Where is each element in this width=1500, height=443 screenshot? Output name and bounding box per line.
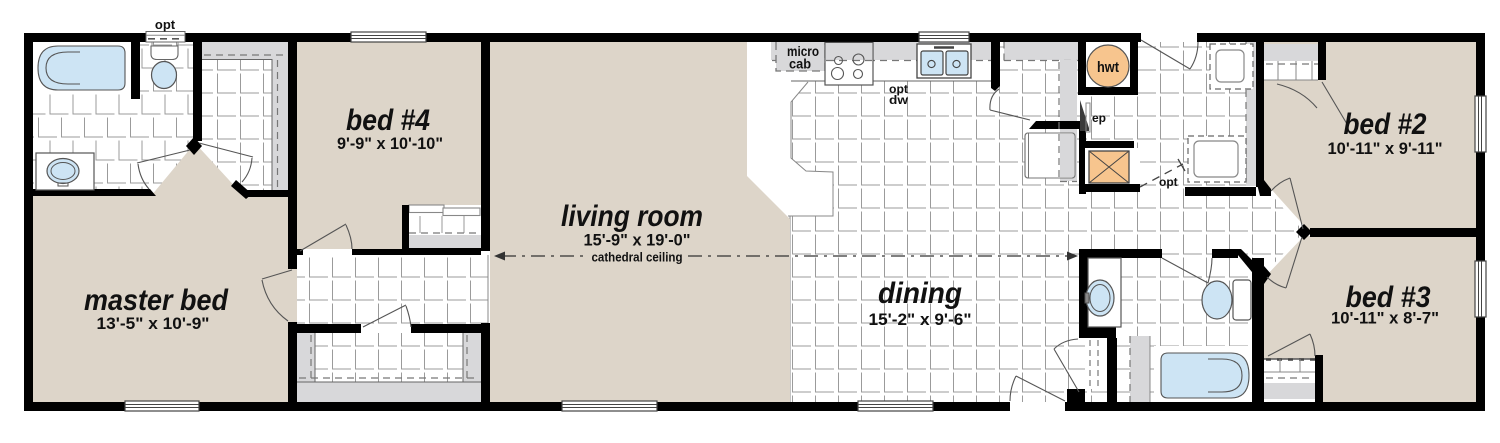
svg-text:ep: ep <box>1092 111 1106 125</box>
svg-text:bed #4: bed #4 <box>346 104 430 137</box>
svg-text:15'-9" x 19'-0": 15'-9" x 19'-0" <box>584 231 691 250</box>
svg-text:hwt: hwt <box>1097 59 1119 76</box>
svg-text:15'-2" x 9'-6": 15'-2" x 9'-6" <box>869 310 972 329</box>
svg-text:dining: dining <box>878 277 962 310</box>
svg-text:10'-11" x 9'-11": 10'-11" x 9'-11" <box>1328 139 1443 158</box>
svg-text:cab: cab <box>789 57 811 72</box>
svg-text:bed #2: bed #2 <box>1344 108 1427 141</box>
svg-text:cathedral ceiling: cathedral ceiling <box>592 250 683 265</box>
svg-text:opt: opt <box>155 17 176 32</box>
svg-text:opt: opt <box>1159 175 1178 189</box>
svg-text:living room: living room <box>561 200 703 233</box>
svg-text:9'-9" x 10'-10": 9'-9" x 10'-10" <box>337 134 443 153</box>
svg-text:10'-11" x 8'-7": 10'-11" x 8'-7" <box>1331 309 1439 328</box>
svg-text:master bed: master bed <box>84 284 229 317</box>
svg-text:dw: dw <box>889 95 908 107</box>
svg-text:13'-5" x 10'-9": 13'-5" x 10'-9" <box>97 314 210 333</box>
